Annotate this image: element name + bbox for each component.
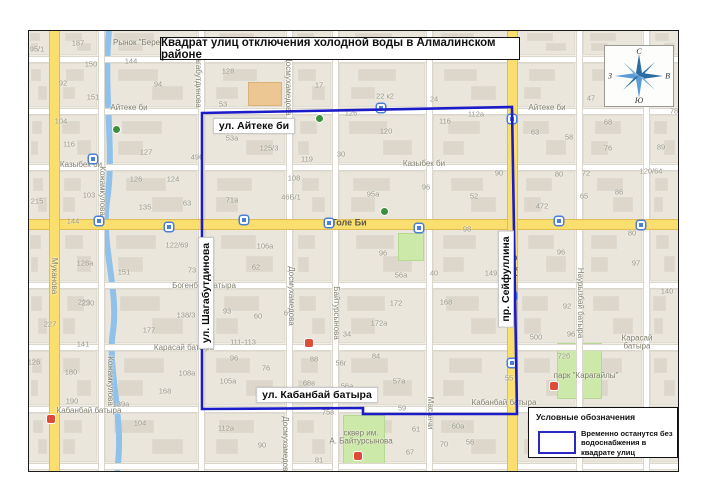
- compass-east-label: В: [665, 72, 670, 81]
- map-title: Квадрат улиц отключения холодной воды в …: [160, 37, 520, 60]
- map-image: Айтеке биАйтеке биКазыбек биКазыбек биБо…: [28, 30, 679, 472]
- street-annotation: ул. Шагабутдинова: [198, 237, 214, 349]
- legend: Условные обозначения Временно останутся …: [528, 407, 678, 458]
- legend-outage-swatch: [538, 431, 576, 454]
- map-title-text: Квадрат улиц отключения холодной воды в …: [161, 37, 519, 61]
- street-annotation: ул. Кабанбай батыра: [256, 387, 378, 403]
- compass-north-label: С: [636, 47, 641, 56]
- page: Айтеке биАйтеке биКазыбек биКазыбек биБо…: [0, 0, 705, 498]
- legend-heading: Условные обозначения: [536, 412, 677, 422]
- compass-rose: С В Ю З: [604, 45, 674, 107]
- compass-west-label: З: [608, 72, 612, 81]
- map-layers: Айтеке биАйтеке биКазыбек биКазыбек биБо…: [29, 31, 678, 471]
- compass-south-label: Ю: [635, 96, 643, 105]
- street-annotation: ул. Айтеке би: [213, 118, 295, 134]
- legend-outage-text: Временно останутся без водоснабжения в к…: [581, 429, 673, 457]
- outage-area-outline: [202, 107, 517, 414]
- street-annotation: пр. Сейфуллина: [498, 230, 514, 327]
